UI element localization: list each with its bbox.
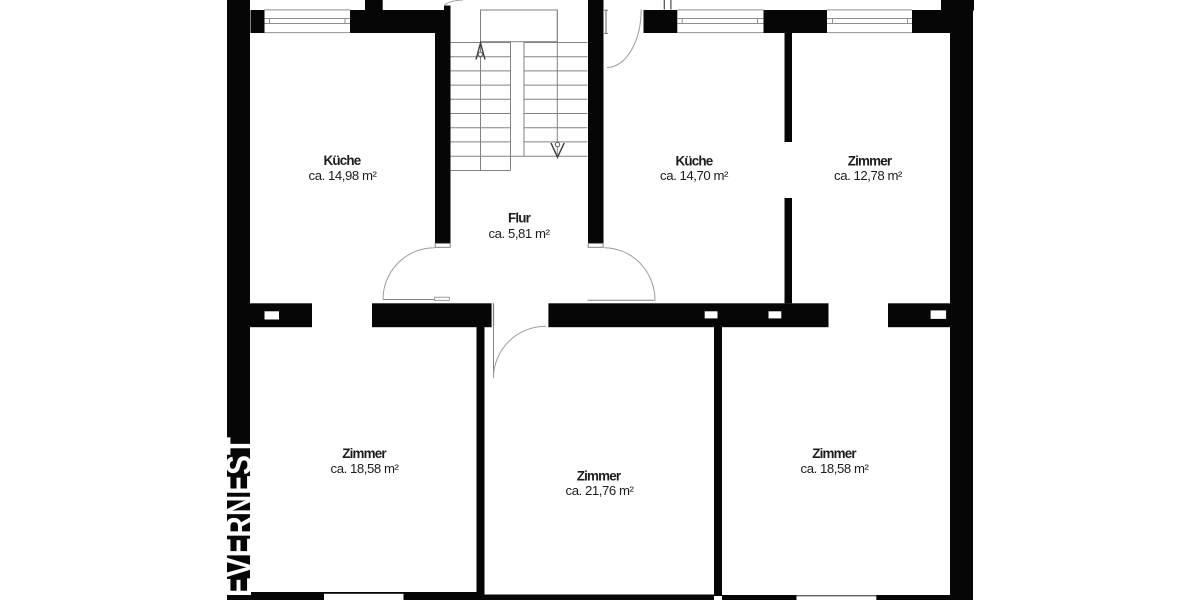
svg-text:ca. 5,81 m²: ca. 5,81 m² xyxy=(488,226,550,241)
svg-text:Küche: Küche xyxy=(676,154,713,169)
svg-text:ca. 18,58 m²: ca. 18,58 m² xyxy=(801,461,870,476)
svg-text:EVERNEST: EVERNEST xyxy=(220,437,259,597)
svg-text:ca. 21,76 m²: ca. 21,76 m² xyxy=(566,483,635,498)
svg-text:Zimmer: Zimmer xyxy=(848,154,893,169)
svg-text:Zimmer: Zimmer xyxy=(812,446,857,461)
svg-text:Zimmer: Zimmer xyxy=(577,469,622,484)
svg-text:ca. 18,58 m²: ca. 18,58 m² xyxy=(331,461,400,476)
svg-text:Küche: Küche xyxy=(324,153,361,168)
svg-text:ca. 14,70 m²: ca. 14,70 m² xyxy=(660,168,729,183)
svg-text:Zimmer: Zimmer xyxy=(342,446,387,461)
svg-text:ca. 14,98 m²: ca. 14,98 m² xyxy=(309,168,378,183)
svg-text:Flur: Flur xyxy=(508,211,532,226)
svg-text:ca. 12,78 m²: ca. 12,78 m² xyxy=(834,168,903,183)
